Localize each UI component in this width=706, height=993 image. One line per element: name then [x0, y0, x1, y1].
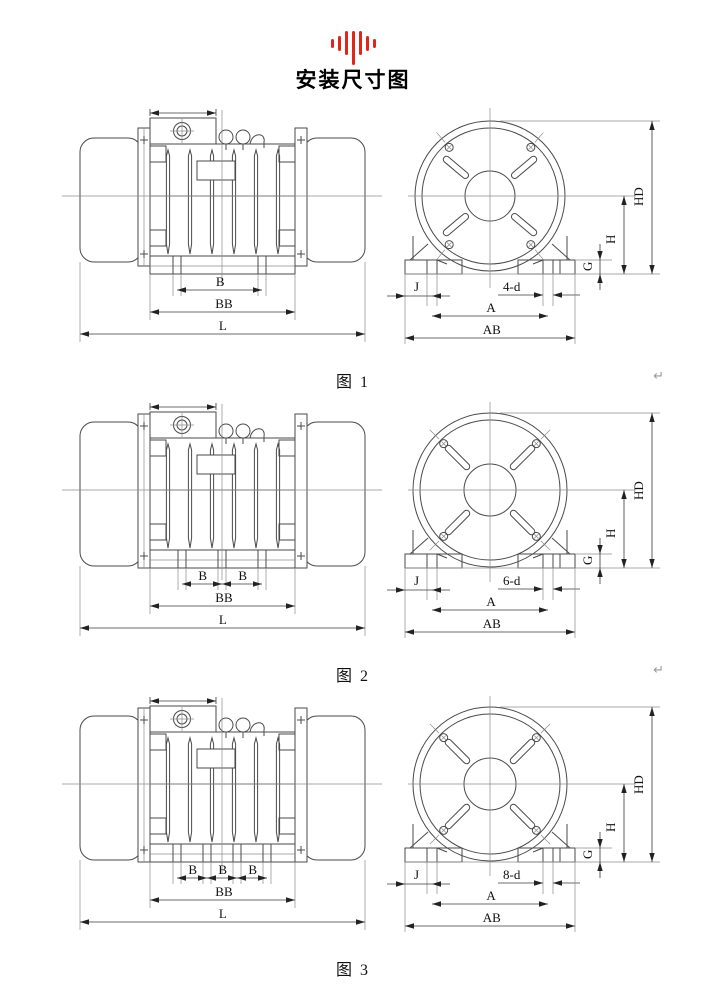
page-header: 安装尺寸图: [0, 0, 706, 104]
page-title: 安装尺寸图: [0, 64, 706, 94]
logo-bar: [352, 31, 355, 65]
dim-label-G: G: [580, 262, 595, 271]
dim-label-A: A: [486, 594, 496, 609]
document-page: 安装尺寸图 BBBLHDHGJ4-dAAB 图 1 ↵ BBBBLHDHGJ6-…: [0, 0, 706, 993]
logo-bar: [366, 36, 369, 51]
dim-label-B: B: [198, 568, 207, 583]
figure-3: BBBBBLHDHGJ8-dAAB 图 3: [0, 692, 706, 986]
figure-1-drawing: BBBLHDHGJ4-dAAB: [0, 104, 706, 368]
dim-label-J: J: [414, 573, 419, 588]
side-view: BBBBBL: [62, 697, 382, 930]
dim-label-HD: HD: [631, 187, 646, 206]
dim-label-G: G: [580, 850, 595, 859]
paragraph-mark-icon: ↵: [653, 368, 664, 384]
dim-label-HD: HD: [631, 775, 646, 794]
dim-label-B: B: [248, 862, 257, 877]
dim-label-A: A: [486, 300, 496, 315]
dim-label-BB: BB: [215, 590, 233, 605]
logo-bar: [373, 39, 376, 48]
dim-label-AB: AB: [483, 616, 501, 631]
front-view: HDHGJ6-dAAB: [387, 402, 660, 638]
dim-label-L: L: [219, 906, 227, 921]
figure-3-caption: 图 3: [336, 962, 370, 979]
figure-2: BBBBLHDHGJ6-dAAB 图 2 ↵: [0, 398, 706, 692]
dim-label-G: G: [580, 556, 595, 565]
figure-3-caption-row: 图 3: [0, 956, 706, 986]
side-view: BBBBL: [62, 403, 382, 636]
side-view: BBBL: [62, 109, 382, 342]
figure-1: BBBLHDHGJ4-dAAB 图 1 ↵: [0, 104, 706, 398]
paragraph-mark-icon: ↵: [653, 662, 664, 678]
dim-label-H: H: [603, 235, 618, 244]
dim-label-holes: 8-d: [503, 867, 521, 882]
dim-label-J: J: [414, 867, 419, 882]
dim-label-L: L: [219, 612, 227, 627]
figure-3-drawing: BBBBBLHDHGJ8-dAAB: [0, 692, 706, 956]
dim-label-B: B: [188, 862, 197, 877]
dim-label-L: L: [219, 318, 227, 333]
dim-label-B: B: [238, 568, 247, 583]
dim-label-holes: 4-d: [503, 279, 521, 294]
dim-label-BB: BB: [215, 884, 233, 899]
figure-2-drawing: BBBBLHDHGJ6-dAAB: [0, 398, 706, 662]
dim-label-B: B: [216, 274, 225, 289]
dim-label-J: J: [414, 279, 419, 294]
figure-1-caption: 图 1: [336, 374, 370, 391]
dim-label-AB: AB: [483, 322, 501, 337]
dim-label-holes: 6-d: [503, 573, 521, 588]
figure-2-caption: 图 2: [336, 668, 370, 685]
logo-bar: [359, 31, 362, 55]
dim-label-HD: HD: [631, 481, 646, 500]
dim-label-B: B: [218, 862, 227, 877]
logo-bar: [338, 36, 341, 51]
dim-label-H: H: [603, 529, 618, 538]
dim-label-BB: BB: [215, 296, 233, 311]
front-view: HDHGJ8-dAAB: [387, 696, 660, 932]
dim-label-A: A: [486, 888, 496, 903]
logo-soundwave-icon: [0, 26, 706, 60]
front-view: HDHGJ4-dAAB: [387, 108, 660, 344]
dim-label-H: H: [603, 823, 618, 832]
figure-1-caption-row: 图 1 ↵: [0, 368, 706, 398]
dim-label-AB: AB: [483, 910, 501, 925]
logo-bar: [345, 31, 348, 55]
logo-bar: [331, 39, 334, 48]
figure-2-caption-row: 图 2 ↵: [0, 662, 706, 692]
